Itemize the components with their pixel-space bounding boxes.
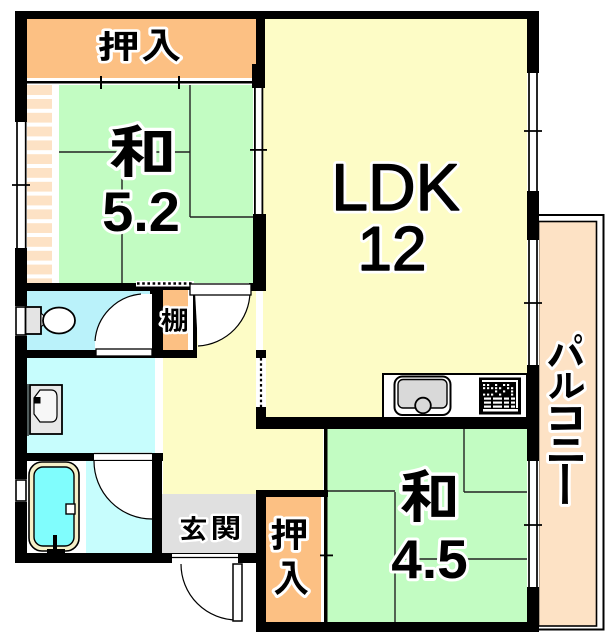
svg-text:4.5: 4.5 [391,528,467,590]
svg-text:LDK: LDK [331,150,459,224]
svg-text:5.2: 5.2 [102,180,180,243]
svg-text:12: 12 [358,215,427,284]
